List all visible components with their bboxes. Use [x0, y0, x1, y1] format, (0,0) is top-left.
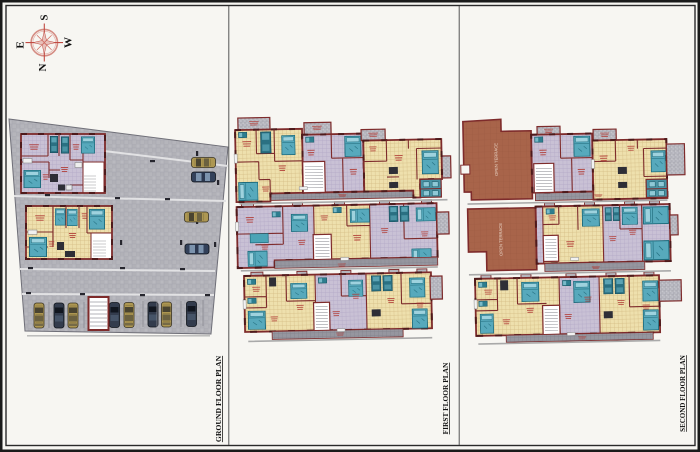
- svg-text:GROUND FLOOR PLAN: GROUND FLOOR PLAN: [214, 355, 223, 442]
- svg-text:S: S: [39, 14, 51, 20]
- svg-text:SECOND FLOOR PLAN: SECOND FLOOR PLAN: [679, 355, 687, 432]
- svg-text:FIRST FLOOR PLAN: FIRST FLOOR PLAN: [441, 362, 450, 434]
- svg-text:E: E: [15, 41, 27, 48]
- svg-text:OPEN TERRACE: OPEN TERRACE: [493, 143, 499, 176]
- svg-text:N: N: [37, 63, 49, 71]
- svg-text:W: W: [63, 37, 75, 48]
- svg-text:OPEN TERRACE: OPEN TERRACE: [498, 223, 504, 256]
